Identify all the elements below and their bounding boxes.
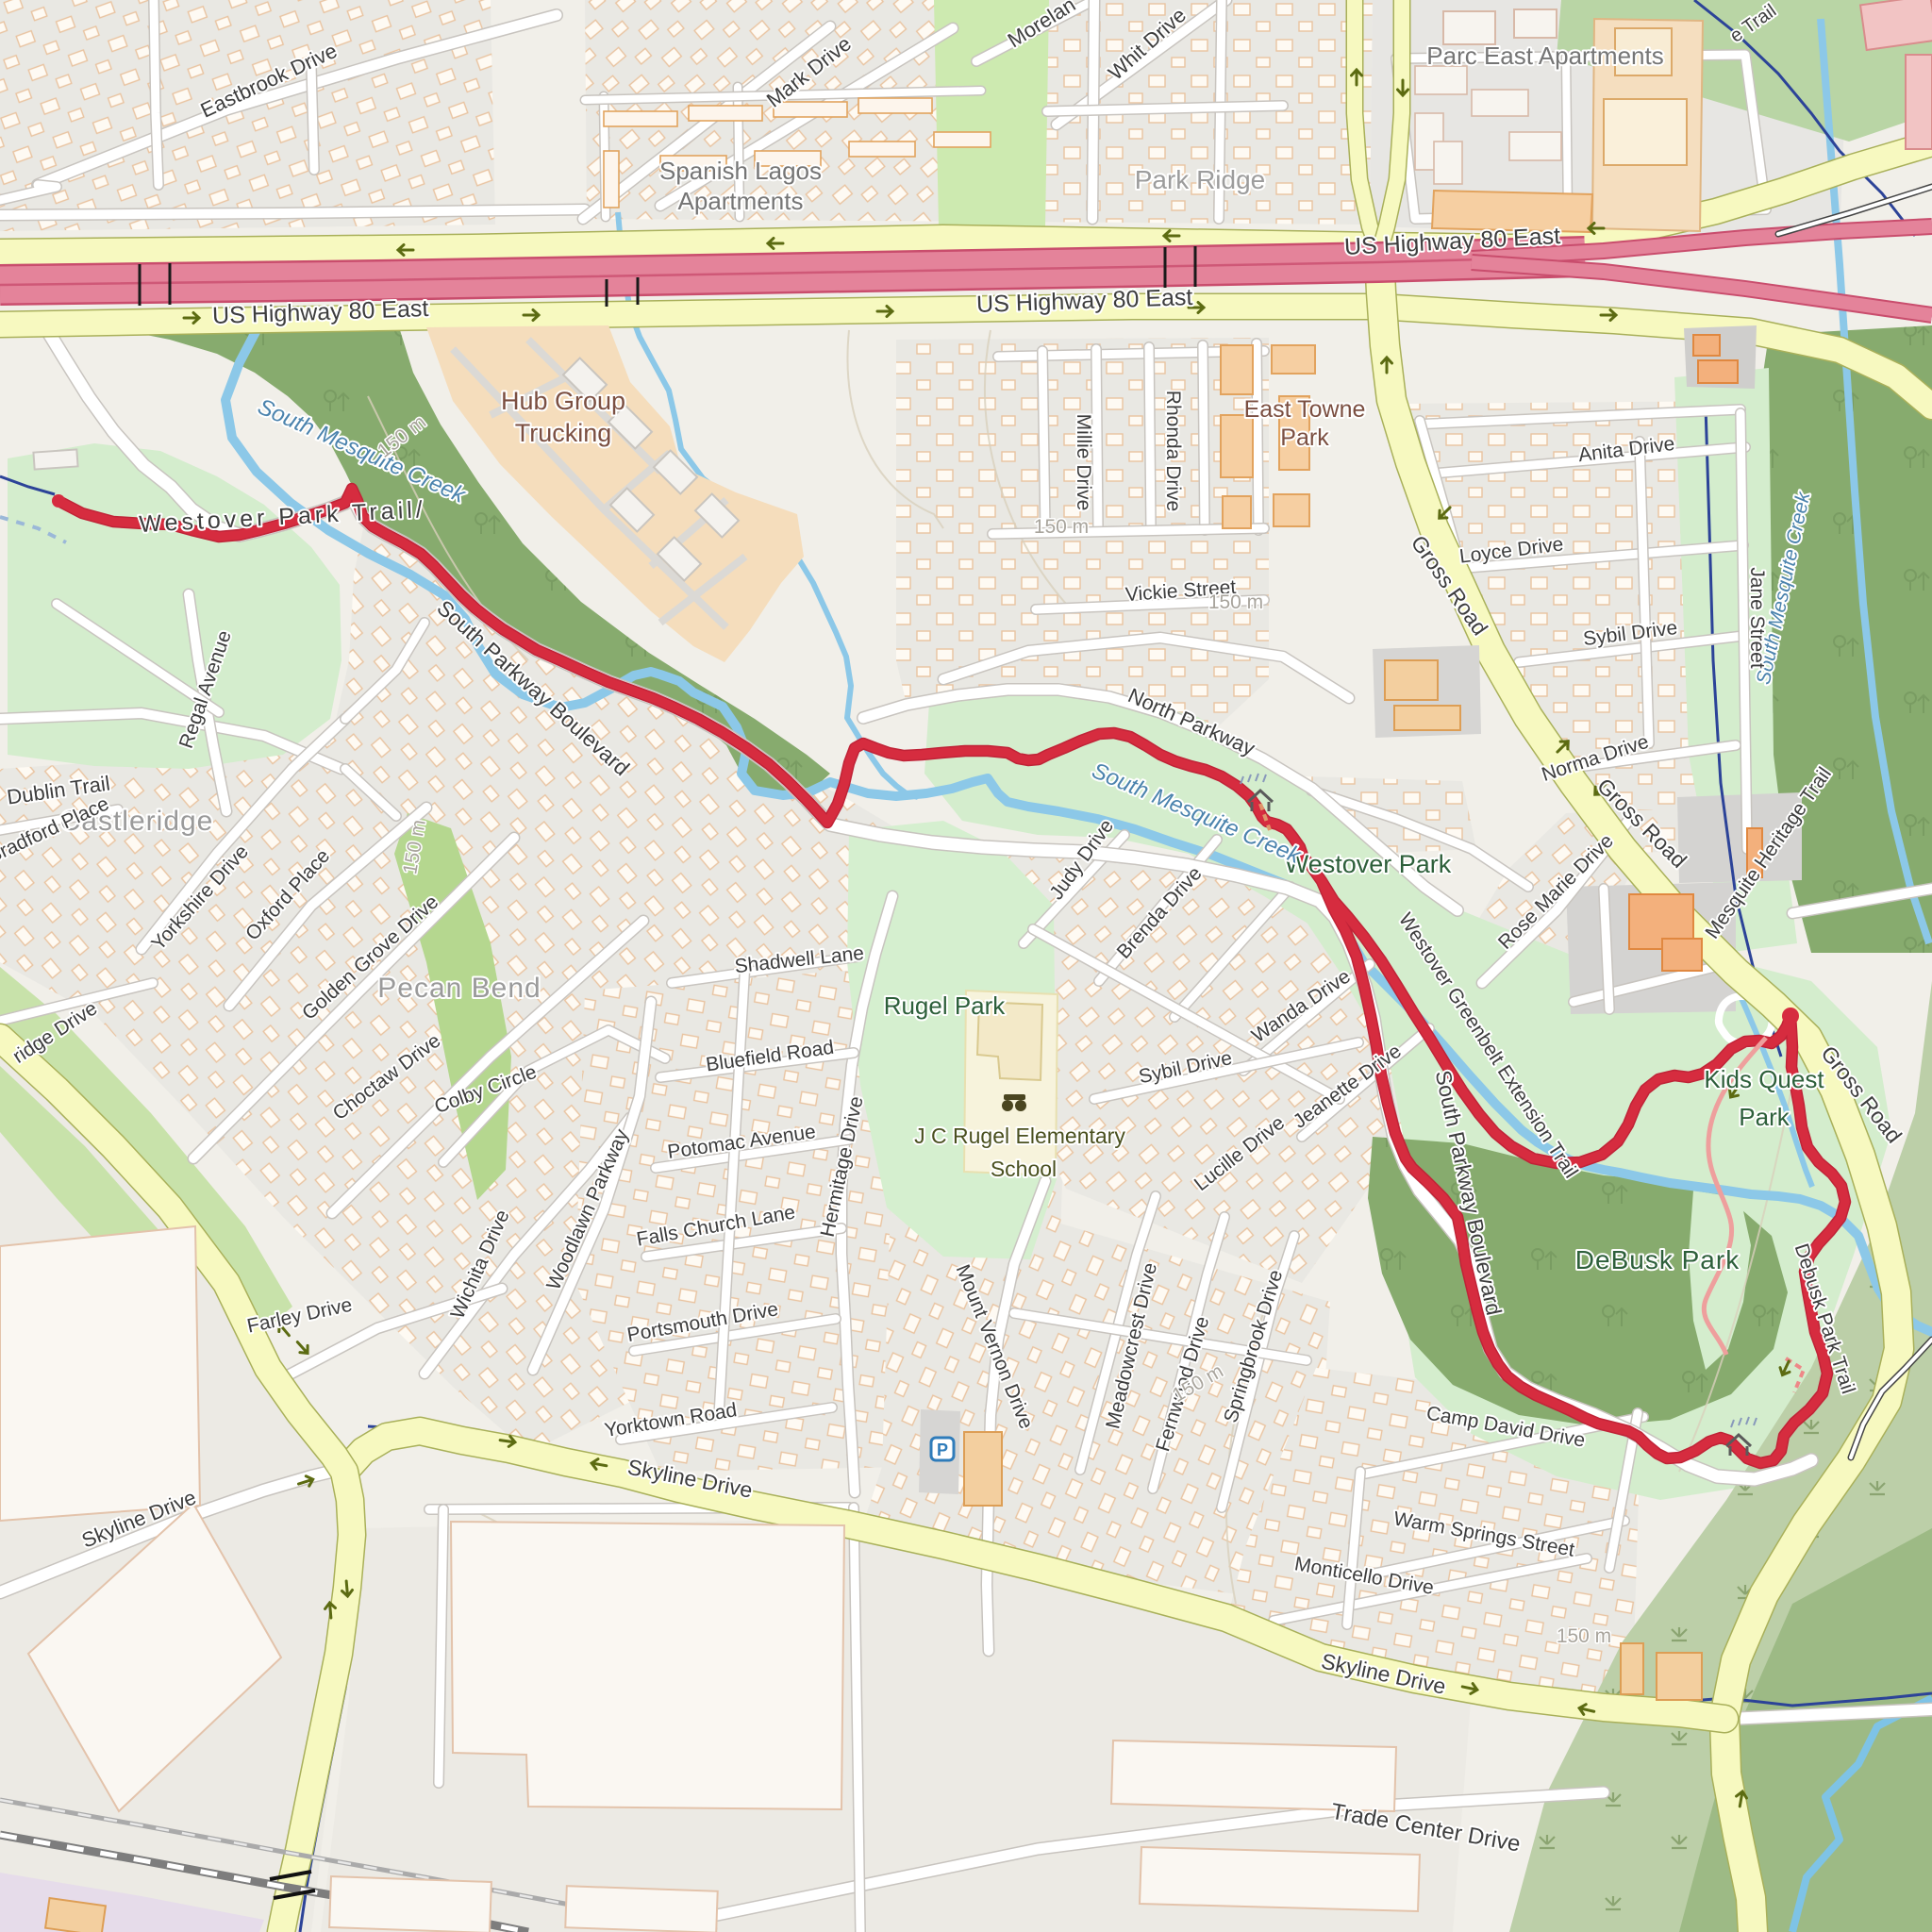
svg-text:Park Ridge: Park Ridge [1135, 165, 1266, 194]
svg-text:School: School [991, 1157, 1057, 1181]
svg-text:J C Rugel Elementary: J C Rugel Elementary [914, 1124, 1125, 1148]
svg-text:East Towne: East Towne [1244, 396, 1366, 423]
svg-text:Trucking: Trucking [515, 419, 612, 447]
svg-text:Rugel Park: Rugel Park [884, 991, 1007, 1020]
svg-text:150 m: 150 m [1208, 591, 1263, 613]
svg-text:P: P [937, 1441, 948, 1459]
svg-text:DeBusk Park: DeBusk Park [1575, 1245, 1740, 1274]
svg-text:Rhonda Drive: Rhonda Drive [1162, 391, 1184, 511]
svg-text:150 m: 150 m [1557, 1625, 1611, 1647]
svg-text:Millie Drive: Millie Drive [1073, 414, 1094, 511]
svg-text:Pecan Bend: Pecan Bend [377, 973, 541, 1004]
svg-text:Park: Park [1280, 425, 1329, 451]
svg-text:Westover Park: Westover Park [1285, 850, 1452, 878]
svg-text:Jane Street: Jane Street [1746, 567, 1768, 669]
svg-text:Apartments: Apartments [678, 187, 804, 215]
svg-text:Park: Park [1739, 1103, 1790, 1131]
svg-text:Spanish Lagos: Spanish Lagos [659, 157, 822, 185]
svg-text:Parc East Apartments: Parc East Apartments [1426, 42, 1663, 70]
svg-text:Hub Group: Hub Group [501, 387, 625, 415]
svg-text:150 m: 150 m [1034, 516, 1089, 538]
svg-text:Kids Quest: Kids Quest [1704, 1065, 1824, 1093]
